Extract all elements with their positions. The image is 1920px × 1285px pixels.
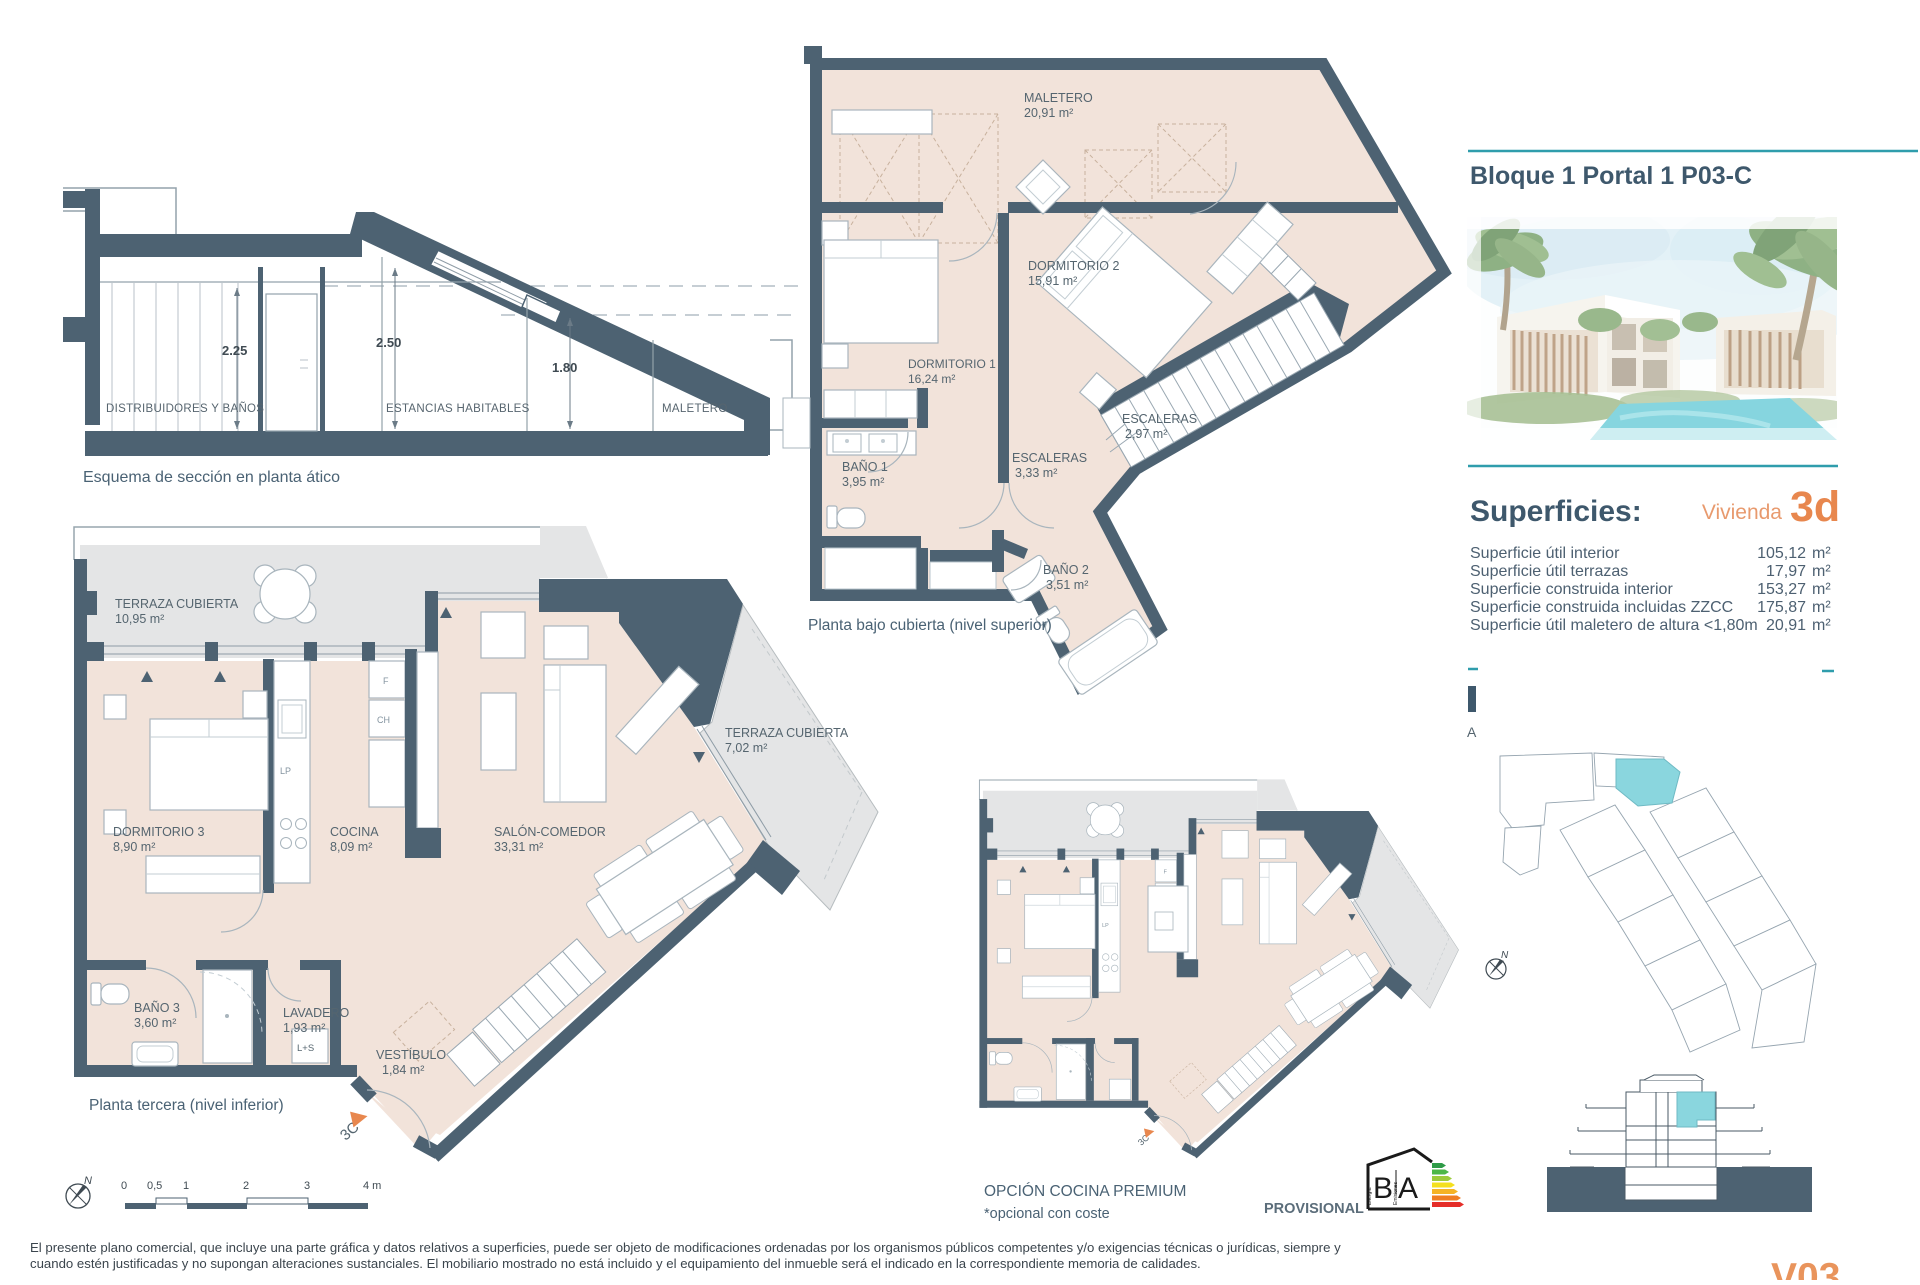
svg-text:20,91 m²: 20,91 m² <box>1024 106 1073 120</box>
svg-text:SALÓN-COMEDOR: SALÓN-COMEDOR <box>494 824 606 839</box>
svg-text:17,97: 17,97 <box>1766 563 1806 580</box>
svg-text:175,87: 175,87 <box>1757 599 1806 616</box>
svg-text:BAÑO 2: BAÑO 2 <box>1043 563 1089 577</box>
svg-text:1,93 m²: 1,93 m² <box>283 1021 325 1035</box>
svg-text:Emisiones: Emisiones <box>1393 1181 1399 1205</box>
svg-text:DISTRIBUIDORES Y BAÑOS: DISTRIBUIDORES Y BAÑOS <box>106 402 264 415</box>
svg-text:m²: m² <box>1812 563 1831 580</box>
svg-text:2,97 m²: 2,97 m² <box>1125 427 1167 441</box>
svg-text:V03: V03 <box>1771 1256 1840 1280</box>
svg-text:Vivienda: Vivienda <box>1702 501 1782 524</box>
svg-text:TERRAZA CUBIERTA: TERRAZA CUBIERTA <box>725 726 849 740</box>
svg-text:ESCALERAS: ESCALERAS <box>1012 451 1087 465</box>
svg-text:DORMITORIO 3: DORMITORIO 3 <box>113 825 204 839</box>
svg-text:4 m: 4 m <box>363 1180 381 1192</box>
svg-text:1.80: 1.80 <box>552 360 577 375</box>
svg-text:L+S: L+S <box>297 1043 314 1054</box>
svg-text:N: N <box>84 1175 92 1187</box>
svg-text:0,5: 0,5 <box>147 1180 162 1192</box>
svg-text:m²: m² <box>1812 617 1831 634</box>
svg-text:Energía: Energía <box>1367 1187 1373 1205</box>
svg-text:Superficie construida incluida: Superficie construida incluidas ZZCC <box>1470 599 1733 616</box>
svg-text:3,51 m²: 3,51 m² <box>1046 578 1088 592</box>
svg-text:Superficies:: Superficies: <box>1470 495 1642 528</box>
svg-text:DORMITORIO 2: DORMITORIO 2 <box>1028 259 1119 273</box>
svg-text:Superficie útil terrazas: Superficie útil terrazas <box>1470 563 1628 580</box>
svg-text:3: 3 <box>304 1180 310 1192</box>
svg-text:TERRAZA CUBIERTA: TERRAZA CUBIERTA <box>115 597 239 611</box>
svg-text:Esquema de sección en planta á: Esquema de sección en planta ático <box>83 469 340 486</box>
svg-text:2.50: 2.50 <box>376 335 401 350</box>
svg-text:1: 1 <box>183 1180 189 1192</box>
svg-text:0: 0 <box>121 1180 127 1192</box>
svg-text:2: 2 <box>243 1180 249 1192</box>
svg-text:1,84 m²: 1,84 m² <box>382 1063 424 1077</box>
svg-text:N: N <box>1501 950 1509 961</box>
svg-text:BAÑO 1: BAÑO 1 <box>842 460 888 474</box>
svg-text:A: A <box>1398 1172 1418 1205</box>
svg-text:ESTANCIAS HABITABLES: ESTANCIAS HABITABLES <box>386 403 530 415</box>
svg-text:*opcional con coste: *opcional con coste <box>984 1206 1110 1222</box>
svg-text:Planta tercera (nivel inferior: Planta tercera (nivel inferior) <box>89 1097 284 1114</box>
svg-text:Superficie construida interior: Superficie construida interior <box>1470 581 1673 598</box>
svg-text:VESTÍBULO: VESTÍBULO <box>376 1047 446 1062</box>
svg-text:16,24 m²: 16,24 m² <box>908 372 955 386</box>
svg-text:A: A <box>1467 724 1477 740</box>
svg-text:m²: m² <box>1812 581 1831 598</box>
svg-text:8,90 m²: 8,90 m² <box>113 840 155 854</box>
svg-text:m²: m² <box>1812 599 1831 616</box>
svg-text:10,95 m²: 10,95 m² <box>115 612 164 626</box>
svg-text:3d: 3d <box>1790 483 1840 531</box>
svg-text:DORMITORIO 1: DORMITORIO 1 <box>908 357 996 371</box>
svg-text:B: B <box>1373 1172 1393 1205</box>
svg-text:Superficie útil interior: Superficie útil interior <box>1470 545 1620 562</box>
svg-text:Planta bajo cubierta (nivel su: Planta bajo cubierta (nivel superior) <box>808 617 1052 634</box>
svg-text:15,91 m²: 15,91 m² <box>1028 274 1077 288</box>
svg-text:153,27: 153,27 <box>1757 581 1806 598</box>
svg-text:3,95 m²: 3,95 m² <box>842 475 884 489</box>
svg-text:BAÑO 3: BAÑO 3 <box>134 1001 180 1015</box>
svg-text:m²: m² <box>1812 545 1831 562</box>
svg-text:2.25: 2.25 <box>222 343 247 358</box>
svg-text:PROVISIONAL: PROVISIONAL <box>1264 1201 1364 1217</box>
svg-text:105,12: 105,12 <box>1757 545 1806 562</box>
svg-text:El presente plano comercial, q: El presente plano comercial, que incluye… <box>30 1240 1341 1255</box>
svg-text:COCINA: COCINA <box>330 825 379 839</box>
svg-text:3,33 m²: 3,33 m² <box>1015 466 1057 480</box>
svg-text:7,02 m²: 7,02 m² <box>725 741 767 755</box>
svg-text:MALETERO: MALETERO <box>662 403 728 415</box>
svg-text:Superficie útil maletero de al: Superficie útil maletero de altura <1,80… <box>1470 617 1758 634</box>
svg-text:MALETERO: MALETERO <box>1024 91 1093 105</box>
svg-text:cuando estén justificadas y no: cuando estén justificadas y no supongan … <box>30 1256 1201 1271</box>
svg-text:Bloque 1 Portal 1 P03-C: Bloque 1 Portal 1 P03-C <box>1470 162 1752 190</box>
svg-text:LAVADERO: LAVADERO <box>283 1006 350 1020</box>
svg-text:OPCIÓN COCINA PREMIUM: OPCIÓN COCINA PREMIUM <box>984 1183 1186 1200</box>
svg-text:20,91: 20,91 <box>1766 617 1806 634</box>
svg-text:8,09 m²: 8,09 m² <box>330 840 372 854</box>
svg-text:3,60 m²: 3,60 m² <box>134 1016 176 1030</box>
svg-text:33,31 m²: 33,31 m² <box>494 840 543 854</box>
svg-text:ESCALERAS: ESCALERAS <box>1122 412 1197 426</box>
